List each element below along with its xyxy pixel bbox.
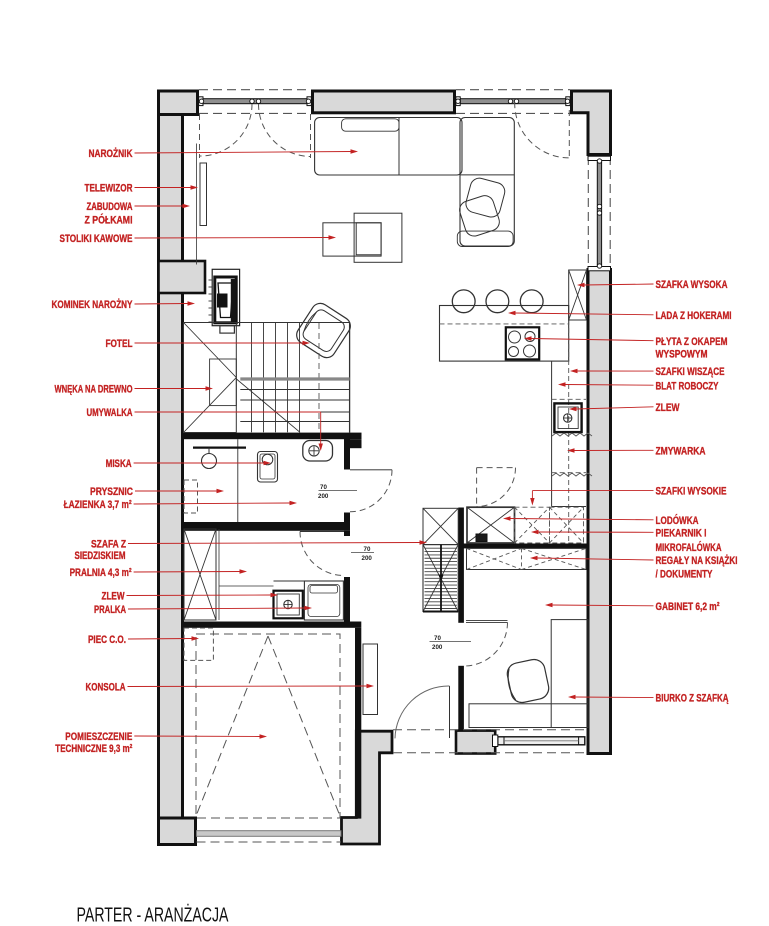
svg-text:ZABUDOWA: ZABUDOWA xyxy=(87,201,133,213)
svg-text:SZAFKI WISZĄCE: SZAFKI WISZĄCE xyxy=(656,366,725,378)
svg-text:TELEWIZOR: TELEWIZOR xyxy=(85,183,133,195)
svg-text:MIKROFALÓWKA: MIKROFALÓWKA xyxy=(656,541,722,554)
svg-text:SZAFKI WYSOKIE: SZAFKI WYSOKIE xyxy=(656,486,727,498)
svg-text:UMYWALKA: UMYWALKA xyxy=(87,407,133,419)
svg-text:KONSOLA: KONSOLA xyxy=(86,682,126,694)
svg-text:PARTER - ARANŻACJA: PARTER - ARANŻACJA xyxy=(77,904,229,926)
svg-text:PRYSZNIC: PRYSZNIC xyxy=(90,486,133,498)
svg-text:PŁYTA Z OKAPEM: PŁYTA Z OKAPEM xyxy=(656,336,728,348)
svg-text:BLAT ROBOCZY: BLAT ROBOCZY xyxy=(656,380,719,392)
svg-text:REGAŁY NA KSIĄŻKI: REGAŁY NA KSIĄŻKI xyxy=(656,554,738,567)
svg-text:MISKA: MISKA xyxy=(106,458,132,470)
svg-text:TECHNICZNE 9,3 m²: TECHNICZNE 9,3 m² xyxy=(55,743,132,755)
svg-text:WYSPOWYM: WYSPOWYM xyxy=(656,349,708,361)
svg-text:NAROŻNIK: NAROŻNIK xyxy=(89,147,134,160)
svg-text:PIEKARNIK I: PIEKARNIK I xyxy=(656,527,707,539)
svg-text:ZMYWARKA: ZMYWARKA xyxy=(656,445,706,457)
svg-text:200: 200 xyxy=(362,555,373,562)
svg-text:SIEDZISKIEM: SIEDZISKIEM xyxy=(75,550,126,562)
svg-text:200: 200 xyxy=(318,493,329,500)
svg-text:PRALKA: PRALKA xyxy=(94,604,126,616)
svg-text:BIURKO Z SZAFKĄ: BIURKO Z SZAFKĄ xyxy=(656,693,729,705)
svg-text:70: 70 xyxy=(434,635,441,642)
svg-text:70: 70 xyxy=(364,546,371,553)
svg-text:200: 200 xyxy=(432,644,443,651)
svg-text:GABINET 6,2 m²: GABINET 6,2 m² xyxy=(656,601,720,613)
svg-text:KOMINEK NAROŻNY: KOMINEK NAROŻNY xyxy=(52,298,133,311)
svg-text:SZAFKA WYSOKA: SZAFKA WYSOKA xyxy=(656,279,728,291)
svg-text:ZLEW: ZLEW xyxy=(102,591,125,603)
svg-text:SZAFA Z: SZAFA Z xyxy=(91,539,126,551)
svg-text:PIEC C.O.: PIEC C.O. xyxy=(88,634,126,646)
svg-text:ŁAZIENKA 3,7 m²: ŁAZIENKA 3,7 m² xyxy=(64,499,132,511)
svg-text:/ DOKUMENTY: / DOKUMENTY xyxy=(656,568,713,580)
svg-text:POMIESZCZENIE: POMIESZCZENIE xyxy=(65,731,132,743)
svg-text:WNĘKA NA DREWNO: WNĘKA NA DREWNO xyxy=(55,384,133,396)
svg-text:LODÓWKA: LODÓWKA xyxy=(656,514,699,527)
svg-text:STOLIKI KAWOWE: STOLIKI KAWOWE xyxy=(60,233,133,245)
svg-text:LADA Z HOKERAMI: LADA Z HOKERAMI xyxy=(656,310,732,322)
svg-text:Z PÓŁKAMI: Z PÓŁKAMI xyxy=(85,214,133,227)
svg-text:FOTEL: FOTEL xyxy=(106,338,133,350)
svg-text:70: 70 xyxy=(320,484,327,491)
svg-text:ZLEW: ZLEW xyxy=(656,402,680,414)
svg-text:PRALNIA 4,3 m²: PRALNIA 4,3 m² xyxy=(70,567,132,579)
